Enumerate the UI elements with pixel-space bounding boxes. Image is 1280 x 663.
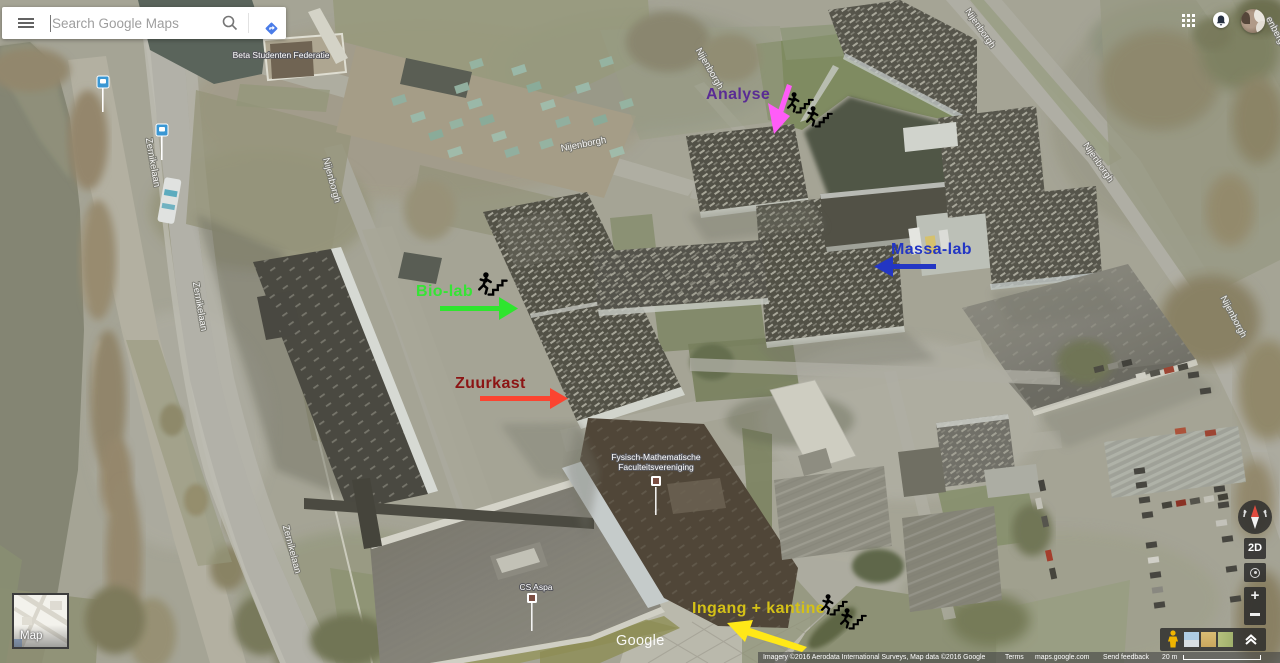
svg-text:Massa-lab: Massa-lab xyxy=(891,241,972,258)
svg-text:Zernikelaan: Zernikelaan xyxy=(190,281,209,332)
svg-text:Nijenborgh: Nijenborgh xyxy=(320,157,343,204)
svg-text:Zuurkast: Zuurkast xyxy=(455,375,526,392)
svg-text:Bio-lab: Bio-lab xyxy=(416,283,473,300)
svg-text:Zernikelaan: Zernikelaan xyxy=(280,524,303,575)
svg-text:Nijenborgh: Nijenborgh xyxy=(962,7,997,51)
svg-text:Nijenborgh: Nijenborgh xyxy=(693,46,726,91)
svg-text:Nijenborgh: Nijenborgh xyxy=(1080,141,1115,185)
svg-text:Ingang + kantine: Ingang + kantine xyxy=(692,600,825,617)
svg-text:Google: Google xyxy=(616,633,665,649)
svg-text:enbergh: enbergh xyxy=(1263,15,1280,51)
svg-text:Nijenborgh: Nijenborgh xyxy=(1218,294,1249,340)
svg-text:Nijenborgh: Nijenborgh xyxy=(560,135,607,155)
svg-text:Fysisch-Mathematische: Fysisch-Mathematische xyxy=(611,452,701,462)
svg-text:Analyse: Analyse xyxy=(706,86,770,103)
svg-text:CS Aspa: CS Aspa xyxy=(519,582,552,592)
svg-text:Zernikelaan: Zernikelaan xyxy=(143,137,162,188)
svg-text:Faculteitsvereniging: Faculteitsvereniging xyxy=(618,462,694,472)
svg-text:Beta Studenten Federatie: Beta Studenten Federatie xyxy=(233,50,330,60)
